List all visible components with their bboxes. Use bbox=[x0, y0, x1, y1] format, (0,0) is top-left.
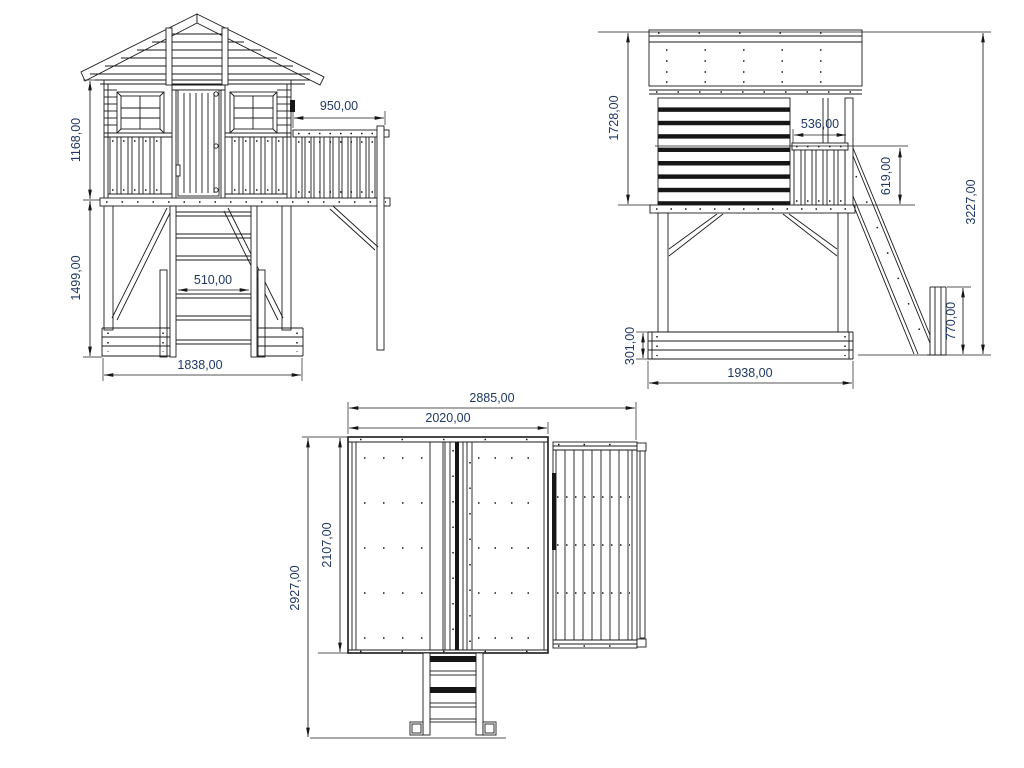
dim-plan-roof-depth: 2107,00 bbox=[320, 522, 334, 567]
side-roof bbox=[649, 30, 862, 94]
front-window-left bbox=[117, 92, 164, 133]
dim-side-house-height: 1728,00 bbox=[607, 95, 621, 140]
side-corner-post bbox=[845, 98, 853, 213]
dim-front-leg-height: 1499,00 bbox=[69, 255, 83, 300]
dim-side-total-height: 3227,00 bbox=[964, 179, 978, 224]
dim-front-ladder-width: 510,00 bbox=[194, 273, 232, 287]
side-substructure bbox=[648, 205, 855, 359]
balcony-post bbox=[377, 126, 384, 350]
side-railing bbox=[792, 143, 848, 205]
side-slide bbox=[853, 148, 946, 355]
dim-side-base-depth: 1938,00 bbox=[727, 366, 772, 380]
dim-plan-total-depth: 2927,00 bbox=[288, 565, 302, 610]
plan-slide-edge bbox=[640, 451, 645, 638]
playhouse-drawing: 1168,00 1499,00 950,00 510,00 1838,00 bbox=[0, 0, 1024, 768]
dim-front-balcony-width: 950,00 bbox=[320, 99, 358, 113]
front-sandbox bbox=[102, 328, 303, 356]
dim-plan-total-width: 2885,00 bbox=[469, 391, 514, 405]
plan-view: 2885,00 2020,00 2107,00 2927,00 bbox=[288, 391, 646, 738]
front-door bbox=[172, 85, 225, 198]
dim-plan-roof-width: 2020,00 bbox=[425, 411, 470, 425]
front-view: 1168,00 1499,00 950,00 510,00 1838,00 bbox=[69, 14, 390, 381]
dim-front-wall-height: 1168,00 bbox=[69, 118, 83, 162]
front-balcony bbox=[293, 126, 389, 350]
door-handle bbox=[176, 165, 180, 176]
front-window-right bbox=[230, 92, 277, 133]
plan-ladder bbox=[410, 653, 496, 735]
plan-balcony bbox=[552, 442, 646, 648]
dim-side-railing-height: 619,00 bbox=[879, 157, 893, 195]
side-view: 1728,00 536,00 619,00 3227,00 301,00 770… bbox=[598, 30, 991, 389]
front-roof bbox=[81, 14, 324, 85]
plan-roof-screws bbox=[364, 450, 542, 648]
dim-side-base-height: 301,00 bbox=[623, 327, 637, 365]
front-platform bbox=[100, 198, 390, 206]
dim-front-base-width: 1838,00 bbox=[177, 358, 222, 372]
side-wall bbox=[658, 98, 853, 213]
dim-side-slide-end-height: 770,00 bbox=[944, 302, 958, 340]
technical-drawing-page: 1168,00 1499,00 950,00 510,00 1838,00 bbox=[0, 0, 1024, 768]
dim-side-balcony-depth: 536,00 bbox=[801, 117, 839, 131]
plan-roof bbox=[348, 437, 548, 653]
plan-door-edge bbox=[552, 473, 556, 550]
side-base bbox=[648, 332, 853, 359]
